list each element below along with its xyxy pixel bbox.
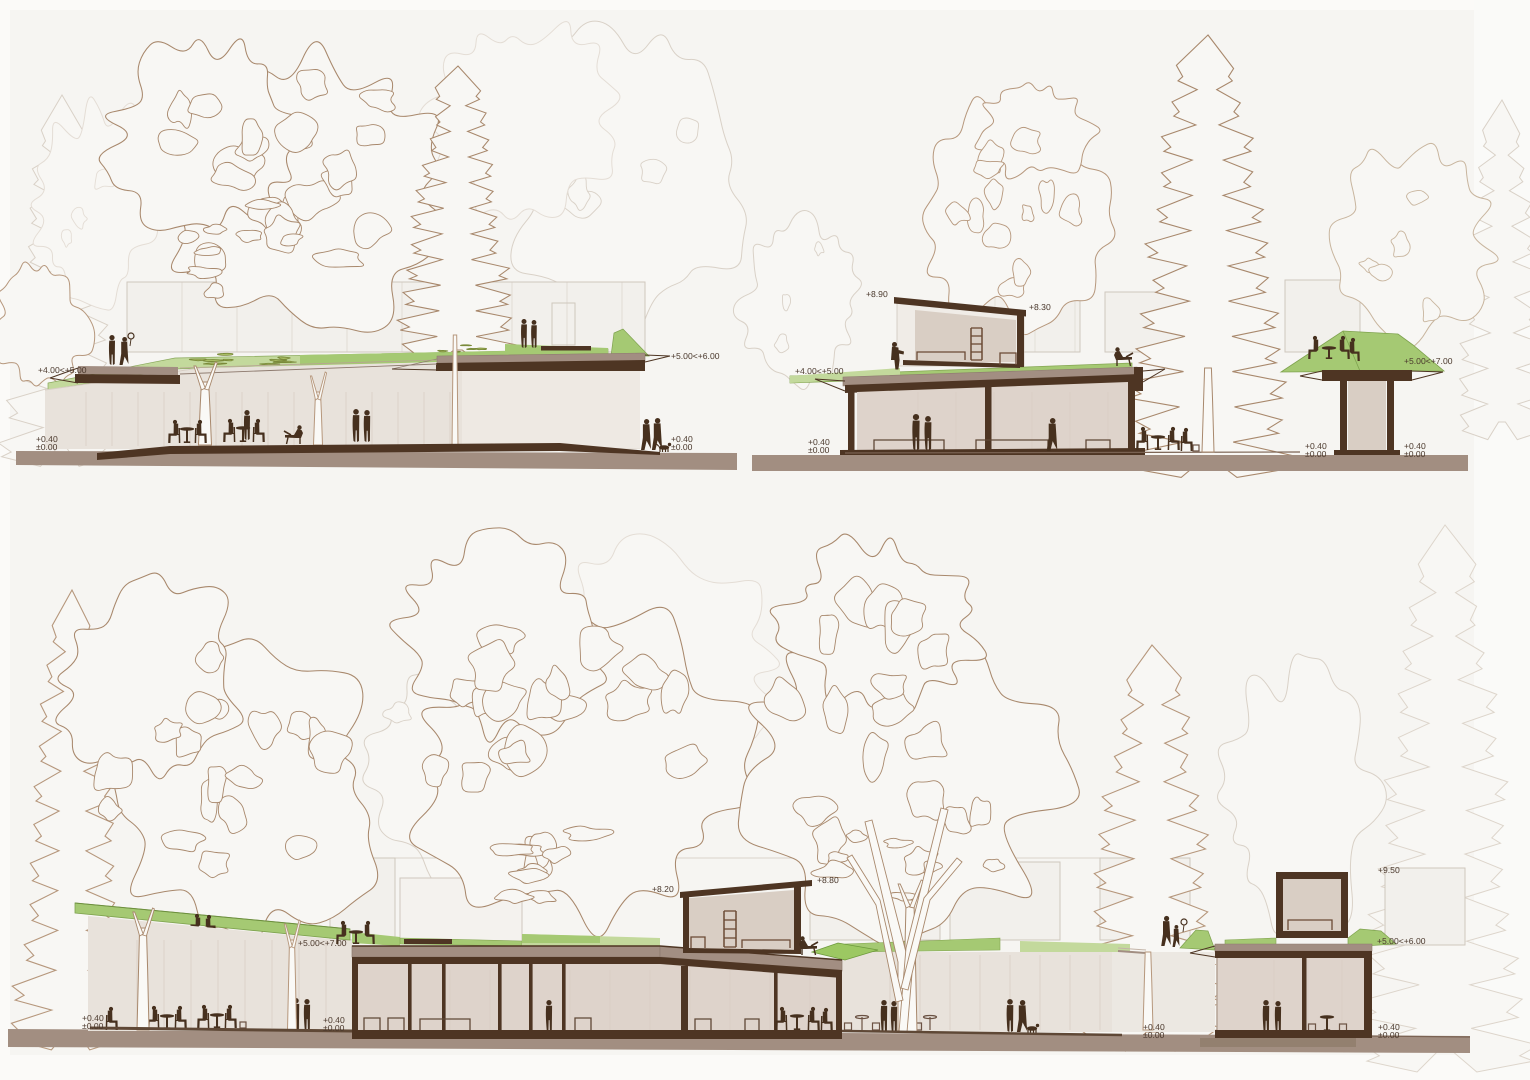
- svg-text:+5.00<+7.00: +5.00<+7.00: [298, 938, 347, 948]
- svg-text:+4.00<+5.00: +4.00<+5.00: [38, 365, 87, 375]
- svg-text:+5.00<+6.00: +5.00<+6.00: [671, 351, 720, 361]
- svg-text:+4.00<+5.00: +4.00<+5.00: [795, 366, 844, 376]
- svg-text:±0.00: ±0.00: [808, 445, 830, 455]
- svg-text:±0.00: ±0.00: [323, 1023, 345, 1033]
- svg-text:+8.20: +8.20: [652, 884, 674, 894]
- svg-text:±0.00: ±0.00: [1404, 449, 1426, 459]
- svg-text:+5.00<+6.00: +5.00<+6.00: [1377, 936, 1426, 946]
- svg-text:±0.00: ±0.00: [671, 442, 693, 452]
- svg-text:+8.30: +8.30: [1029, 302, 1051, 312]
- svg-text:±0.00: ±0.00: [1143, 1030, 1165, 1040]
- svg-text:+9.50: +9.50: [1378, 865, 1400, 875]
- svg-text:+5.00<+7.00: +5.00<+7.00: [1404, 356, 1453, 366]
- svg-text:±0.00: ±0.00: [82, 1021, 104, 1031]
- svg-text:±0.00: ±0.00: [1378, 1030, 1400, 1040]
- svg-text:+8.90: +8.90: [866, 289, 888, 299]
- svg-text:+8.80: +8.80: [817, 875, 839, 885]
- svg-text:±0.00: ±0.00: [1305, 449, 1327, 459]
- svg-text:±0.00: ±0.00: [36, 442, 58, 452]
